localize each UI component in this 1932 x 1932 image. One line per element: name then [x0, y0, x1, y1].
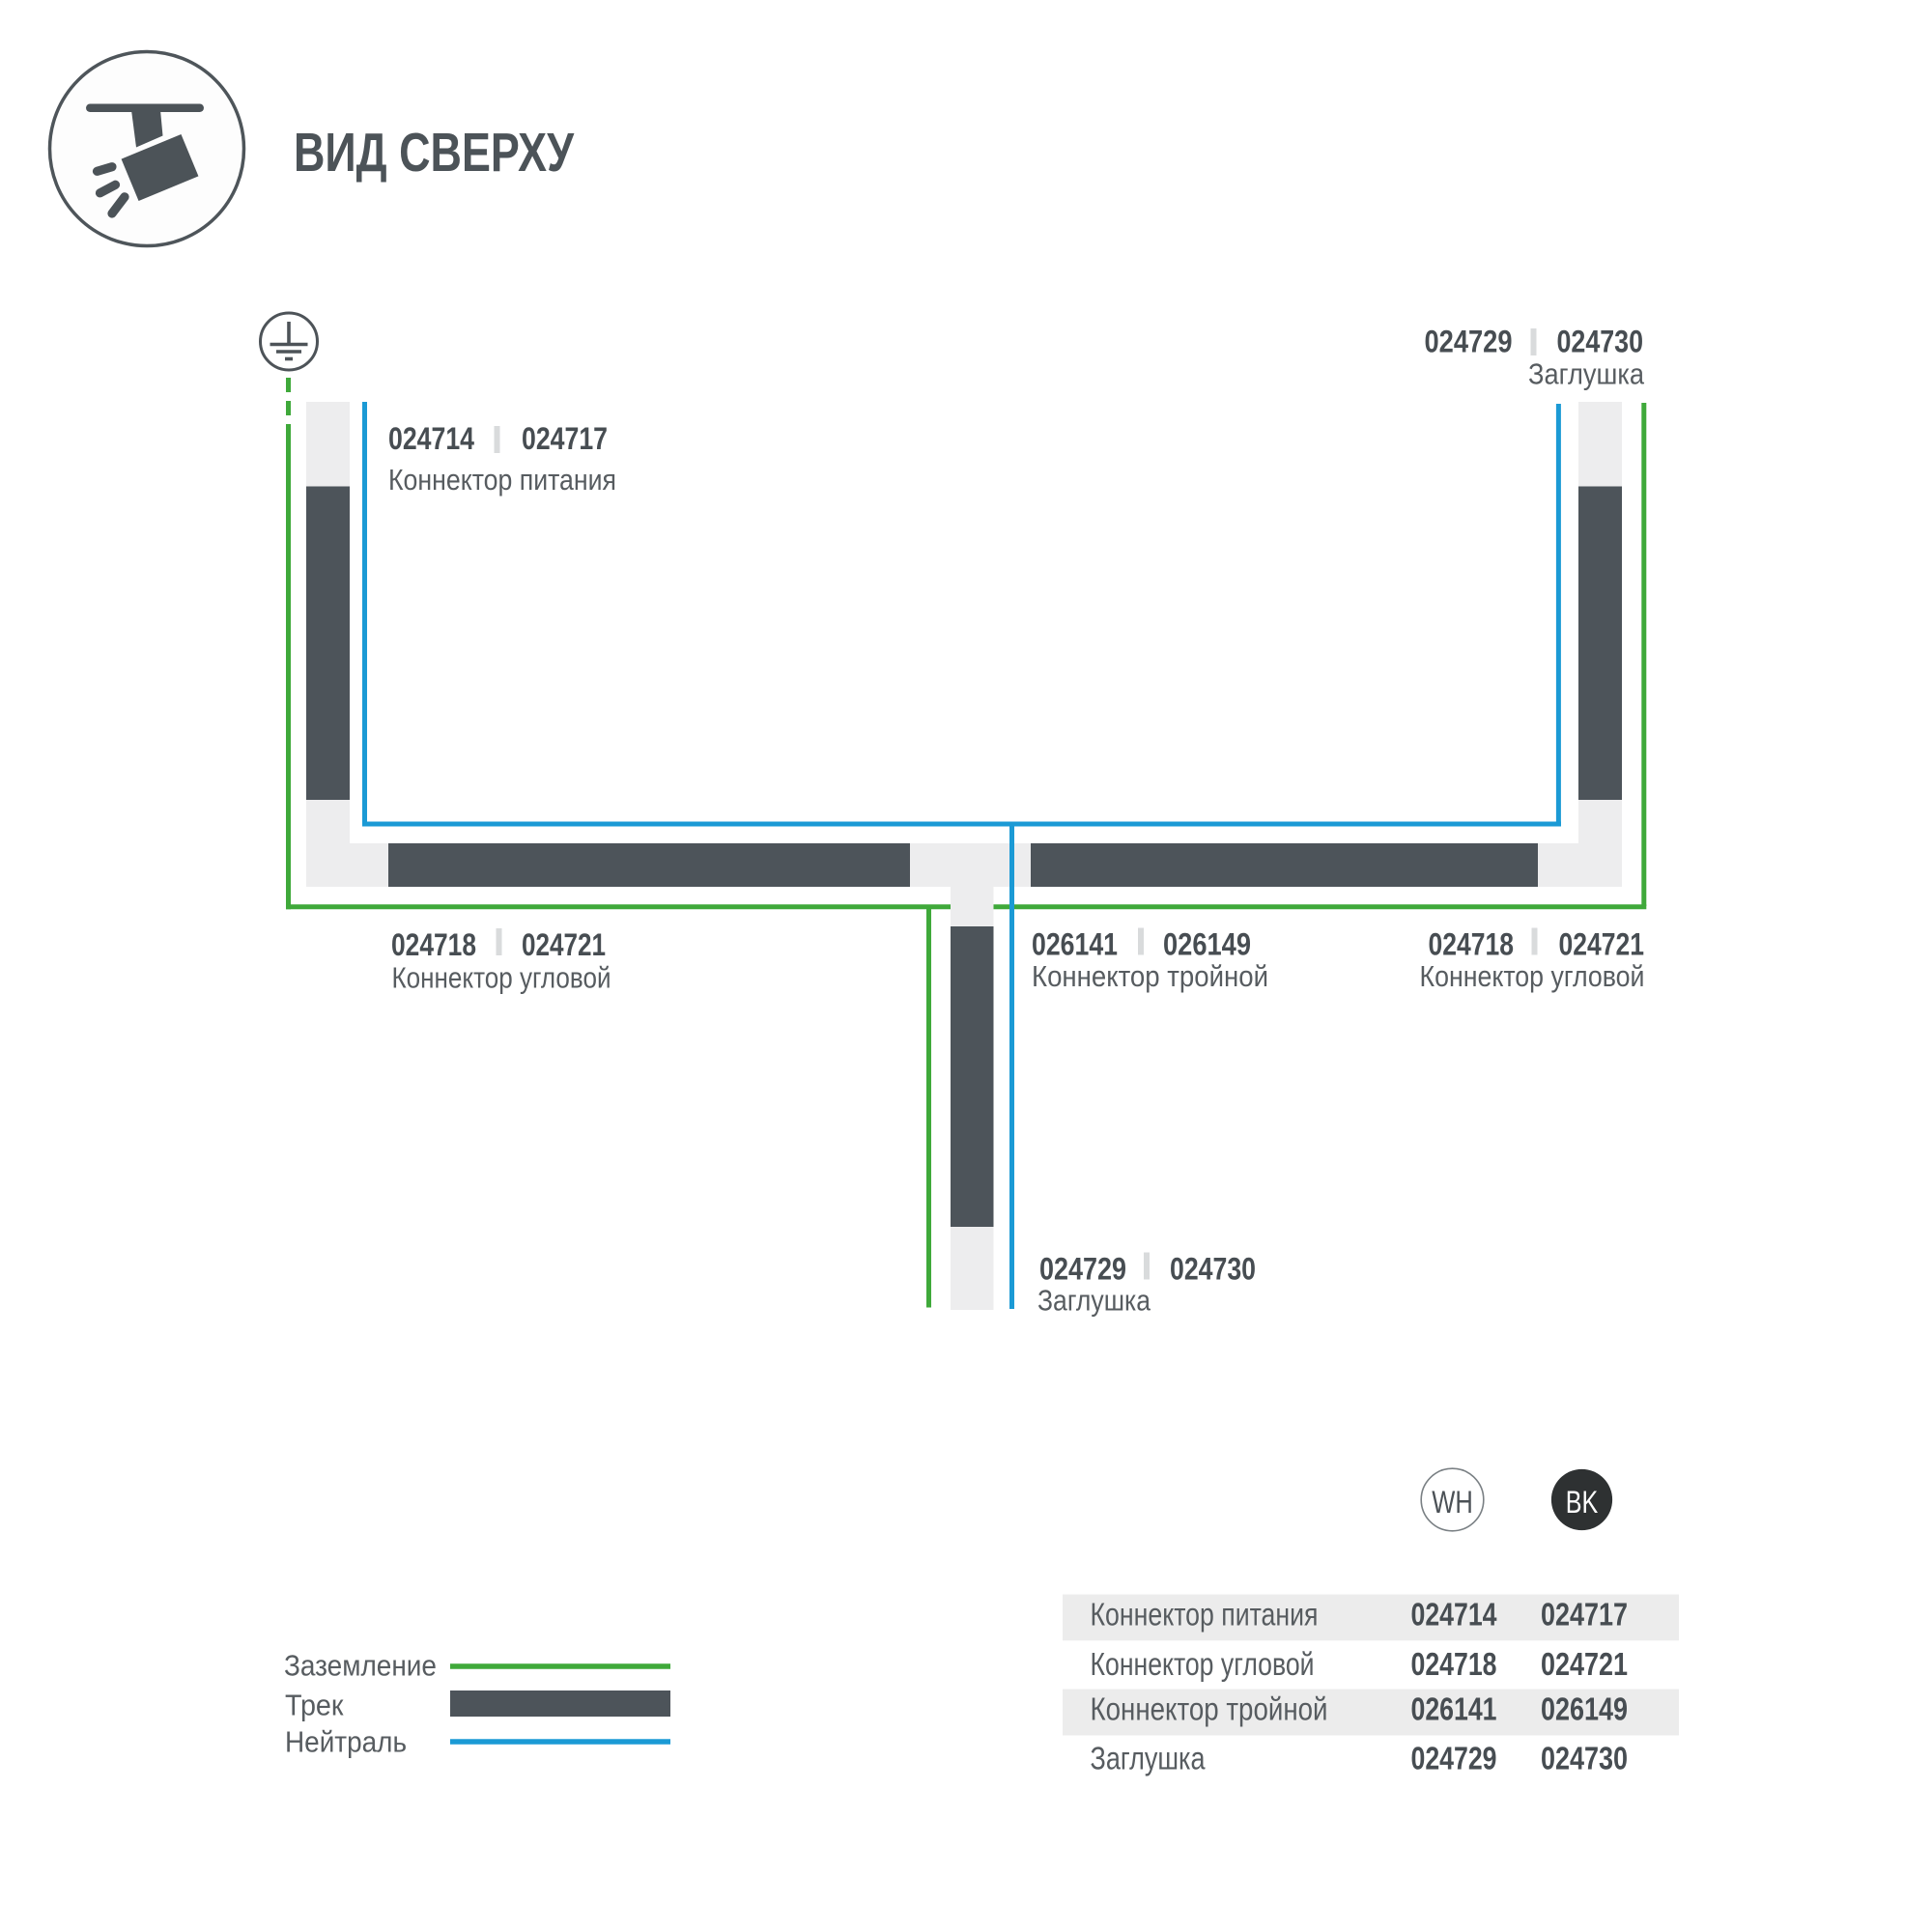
svg-text:Трек: Трек: [285, 1689, 344, 1722]
svg-text:026149: 026149: [1541, 1691, 1628, 1727]
svg-text:024721: 024721: [1541, 1646, 1628, 1682]
svg-text:026141: 026141: [1411, 1691, 1497, 1727]
svg-text:Заглушка: Заглушка: [1091, 1741, 1207, 1776]
svg-text:Нейтраль: Нейтраль: [285, 1725, 407, 1759]
svg-text:026149: 026149: [1163, 927, 1251, 962]
svg-text:Коннектор тройной: Коннектор тройной: [1032, 959, 1268, 993]
svg-text:024729: 024729: [1411, 1741, 1497, 1776]
svg-text:026141: 026141: [1032, 927, 1118, 962]
svg-text:024730: 024730: [1557, 325, 1644, 359]
svg-text:024721: 024721: [1559, 927, 1645, 962]
svg-text:024717: 024717: [522, 421, 608, 456]
svg-text:Коннектор питания: Коннектор питания: [1091, 1597, 1319, 1633]
svg-text:024714: 024714: [388, 421, 474, 456]
svg-text:Заземление: Заземление: [284, 1649, 437, 1683]
svg-text:BK: BK: [1566, 1485, 1599, 1520]
svg-text:024729: 024729: [1039, 1252, 1126, 1287]
svg-text:024730: 024730: [1170, 1252, 1256, 1287]
svg-text:Заглушка: Заглушка: [1528, 357, 1645, 391]
svg-text:Заглушка: Заглушка: [1037, 1284, 1151, 1318]
svg-text:024718: 024718: [391, 927, 476, 962]
svg-text:024721: 024721: [522, 927, 606, 962]
svg-text:Коннектор тройной: Коннектор тройной: [1091, 1691, 1328, 1727]
svg-text:ВИД СВЕРХУ: ВИД СВЕРХУ: [294, 122, 574, 184]
svg-text:Коннектор угловой: Коннектор угловой: [1420, 959, 1645, 993]
svg-text:Коннектор угловой: Коннектор угловой: [1091, 1646, 1315, 1682]
svg-text:Коннектор угловой: Коннектор угловой: [392, 961, 611, 995]
svg-text:024717: 024717: [1541, 1597, 1628, 1633]
svg-text:024730: 024730: [1541, 1741, 1628, 1776]
svg-text:Коннектор питания: Коннектор питания: [388, 463, 616, 497]
svg-text:024729: 024729: [1425, 325, 1513, 359]
svg-text:024718: 024718: [1429, 927, 1515, 962]
svg-text:024714: 024714: [1411, 1597, 1498, 1633]
svg-text:024718: 024718: [1411, 1646, 1497, 1682]
svg-text:WH: WH: [1432, 1485, 1473, 1520]
